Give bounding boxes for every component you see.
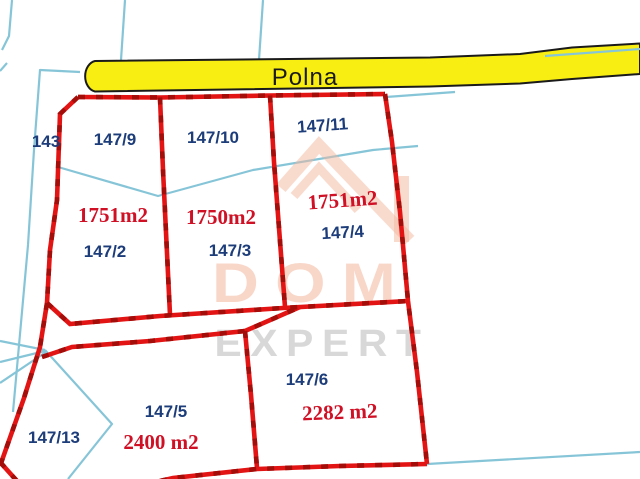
road-name-label: Polna	[272, 64, 338, 91]
parcel-label-143: 143	[32, 132, 60, 151]
parcel-label-147-3: 147/3	[209, 241, 252, 260]
parcel-label-147-10: 147/10	[187, 128, 239, 147]
area-label-147-2: 1751m2	[78, 203, 148, 227]
map-canvas: Polna DOM EXPERT	[0, 0, 640, 479]
area-label-147-5: 2400 m2	[123, 430, 198, 454]
area-label-147-6: 2282 m2	[302, 399, 378, 426]
cadastral-map: Polna DOM EXPERT	[0, 0, 640, 479]
parcel-label-147-2: 147/2	[84, 242, 127, 261]
area-label-147-3: 1750m2	[186, 205, 256, 229]
area-label-147-4: 1751m2	[307, 186, 379, 215]
parcel-label-147-6: 147/6	[286, 370, 329, 389]
parcel-label-147-11: 147/11	[296, 114, 348, 137]
parcel-label-147-13: 147/13	[28, 428, 80, 447]
parcel-label-147-5: 147/5	[145, 402, 188, 421]
parcel-label-147-4: 147/4	[321, 222, 365, 243]
parcel-label-147-9: 147/9	[94, 130, 137, 149]
